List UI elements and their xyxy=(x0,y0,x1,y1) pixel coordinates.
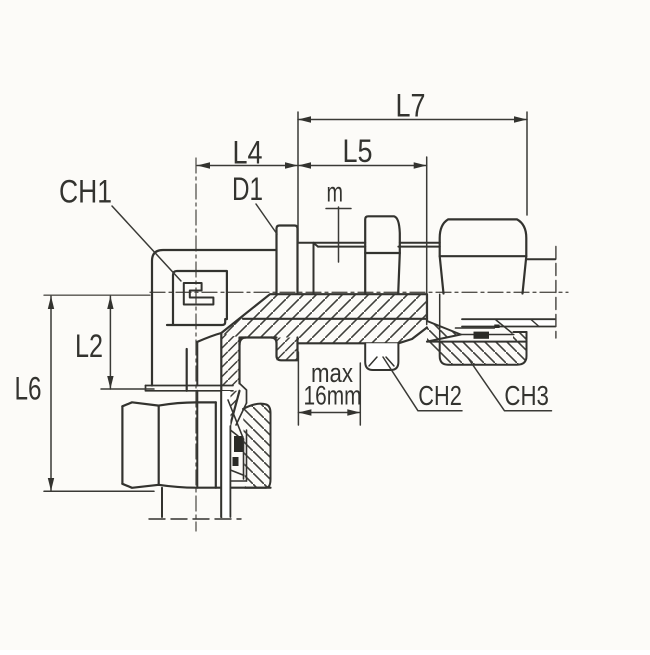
svg-text:L4: L4 xyxy=(233,135,263,171)
svg-text:CH3: CH3 xyxy=(504,380,549,411)
svg-text:L6: L6 xyxy=(15,371,42,407)
svg-text:L2: L2 xyxy=(75,328,103,364)
svg-text:L5: L5 xyxy=(343,133,373,169)
svg-text:16mm: 16mm xyxy=(304,381,362,411)
svg-text:m: m xyxy=(327,177,344,208)
svg-text:CH1: CH1 xyxy=(59,174,112,210)
svg-text:L7: L7 xyxy=(396,88,426,124)
svg-text:CH2: CH2 xyxy=(418,380,462,411)
svg-text:D1: D1 xyxy=(232,171,263,207)
